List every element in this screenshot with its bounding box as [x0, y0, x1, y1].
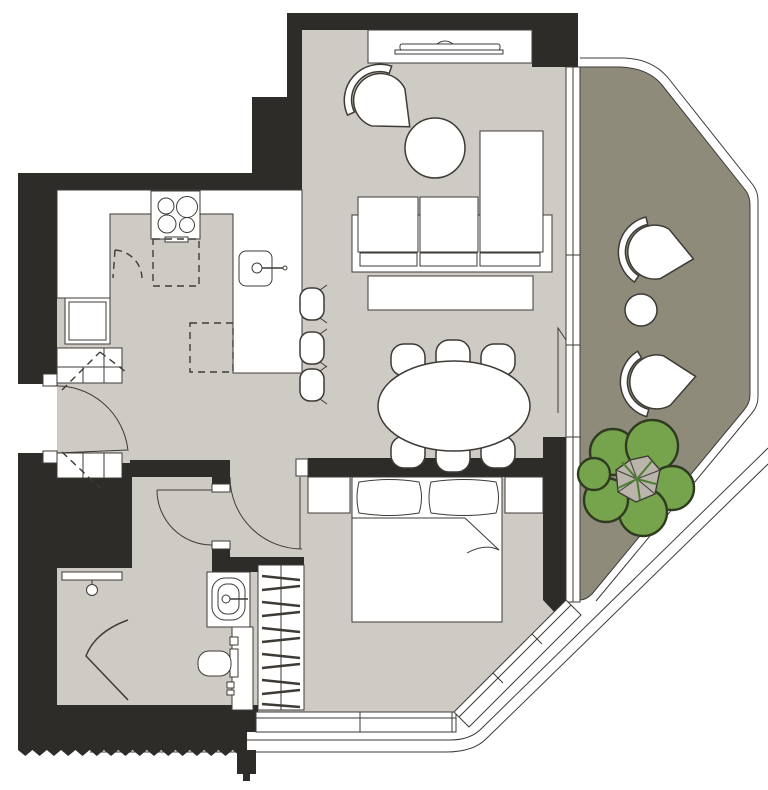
balcony-side-table [625, 294, 657, 326]
dining-area [378, 340, 530, 472]
sofa-seat-1 [358, 197, 418, 252]
shoe-cabinet-upper-1 [57, 348, 122, 367]
wall-left-lower [18, 453, 57, 712]
entry-landing [18, 384, 57, 453]
shower-head [87, 585, 98, 596]
sofa-back-cushion-1 [360, 253, 417, 266]
shower-bar [62, 572, 122, 580]
sofa-chaise [480, 131, 543, 252]
entry-jamb-top [43, 374, 57, 386]
wall-living-left [287, 30, 302, 190]
cooktop [151, 191, 200, 242]
wall-bedroom-balcony [543, 437, 568, 616]
brush-holder [227, 690, 234, 695]
entry-jamb-bottom [43, 451, 57, 463]
bathroom-door-jamb-bottom [212, 541, 230, 549]
sofa-back-cushion-3 [480, 253, 540, 266]
wall-left-upper [18, 173, 57, 384]
tv-screen [400, 44, 500, 50]
tree-canopy-blob [578, 458, 610, 490]
wall-kitchen-top [57, 173, 302, 190]
bathroom-door-jamb-top [212, 484, 230, 492]
faucet-base [252, 263, 262, 273]
wall-bottom-breakline [18, 705, 247, 756]
sofa-seat-2 [420, 197, 478, 252]
wall-top-right-column [532, 30, 578, 67]
wall-bottom-stub [237, 750, 256, 781]
shaft-block [57, 463, 132, 568]
floor-plan-drawing [0, 0, 768, 790]
tree [578, 420, 694, 536]
toilet-bowl [198, 651, 231, 676]
rug [368, 276, 533, 310]
bedroom-door-jamb [296, 459, 308, 476]
basin-faucet [222, 595, 230, 603]
wall-hall [130, 460, 230, 477]
shoe-cabinet-upper-2 [57, 367, 122, 383]
nightstand-left [308, 477, 350, 513]
window-band [256, 712, 456, 732]
wardrobe [258, 565, 304, 710]
dining-table [378, 361, 530, 451]
kitchen-appliance [65, 298, 110, 344]
floor-plan [0, 0, 768, 790]
pillow-left [357, 480, 422, 516]
tp-holder [227, 682, 234, 688]
appliance-body [65, 298, 110, 344]
nightstand-right [505, 477, 543, 513]
flush-button [230, 637, 238, 645]
wall-top [287, 13, 578, 30]
sofa-back-cushion-2 [420, 253, 477, 266]
vanity [207, 572, 250, 627]
coffee-table [405, 118, 465, 178]
pillow-right [429, 480, 499, 516]
